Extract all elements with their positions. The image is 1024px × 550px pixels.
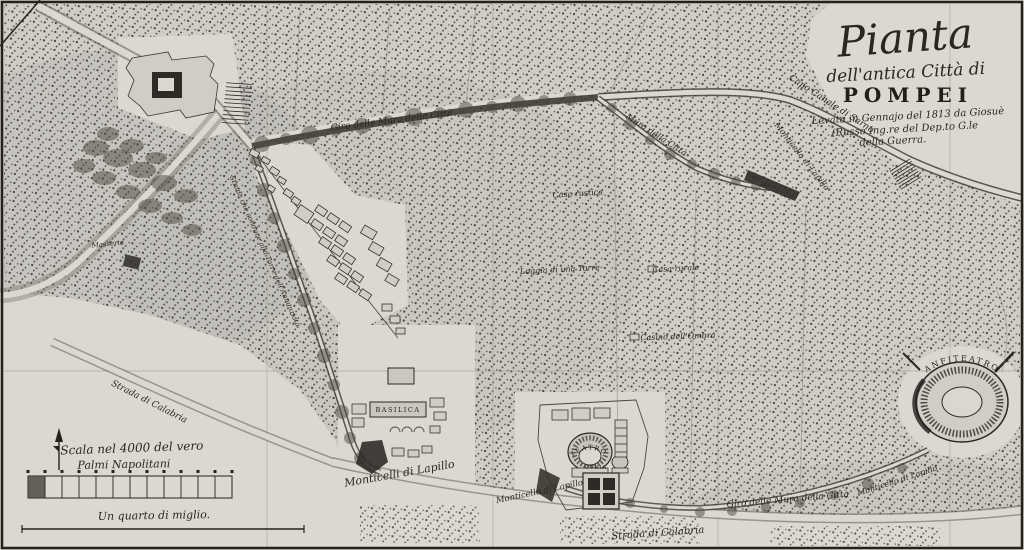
label-basilica: BASILICA (375, 406, 420, 414)
pompei-map-screenshot: Piantadell'antica Città diPOMPEILevata i… (0, 0, 1024, 550)
title-script: Pianta (835, 8, 975, 66)
title-pompei: POMPEI (843, 83, 973, 107)
label-curia: CURIA (585, 465, 607, 471)
map-canvas: Piantadell'antica Città diPOMPEILevata i… (0, 0, 1024, 550)
scale-palmi: Palmi Napolitani (76, 457, 170, 472)
scale-quarter: Un quarto di miglio. (98, 508, 211, 523)
